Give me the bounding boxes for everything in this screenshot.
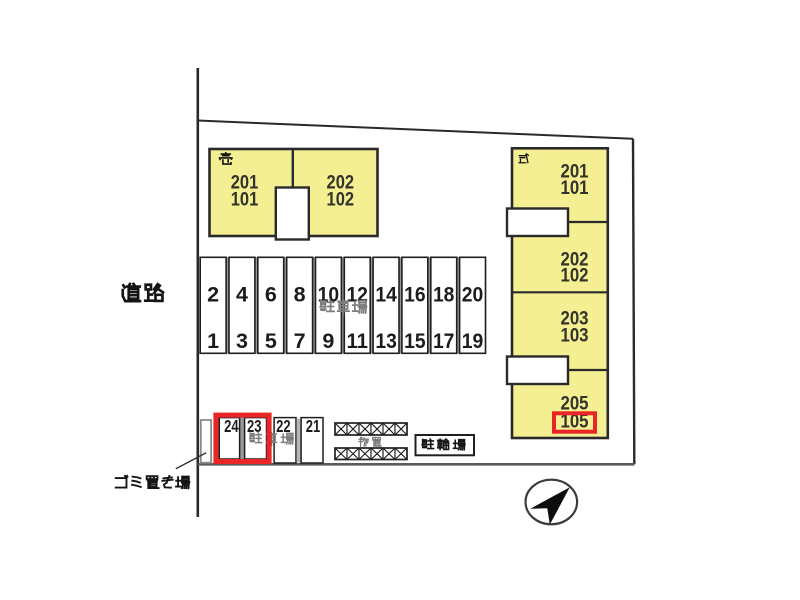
svg-text:23: 23: [247, 416, 262, 436]
svg-text:9: 9: [322, 329, 334, 353]
svg-text:101: 101: [561, 178, 589, 199]
svg-text:4: 4: [236, 282, 248, 306]
svg-text:1: 1: [207, 329, 219, 353]
svg-text:17: 17: [433, 329, 455, 353]
svg-text:24: 24: [224, 416, 239, 436]
svg-text:18: 18: [433, 282, 455, 306]
svg-text:6: 6: [265, 282, 277, 306]
svg-text:21: 21: [306, 416, 321, 436]
svg-text:3: 3: [236, 329, 248, 353]
svg-text:8: 8: [294, 282, 306, 306]
svg-text:103: 103: [561, 325, 589, 346]
svg-text:16: 16: [404, 282, 426, 306]
svg-text:2: 2: [207, 282, 219, 306]
svg-text:13: 13: [375, 329, 397, 353]
svg-text:102: 102: [561, 266, 589, 287]
svg-text:15: 15: [404, 329, 426, 353]
svg-text:19: 19: [462, 329, 484, 353]
svg-text:102: 102: [327, 189, 355, 210]
svg-text:101: 101: [231, 189, 259, 210]
svg-text:5: 5: [265, 329, 277, 353]
svg-text:20: 20: [462, 282, 484, 306]
svg-text:14: 14: [375, 282, 397, 306]
svg-text:7: 7: [294, 329, 306, 353]
svg-text:11: 11: [346, 329, 368, 353]
